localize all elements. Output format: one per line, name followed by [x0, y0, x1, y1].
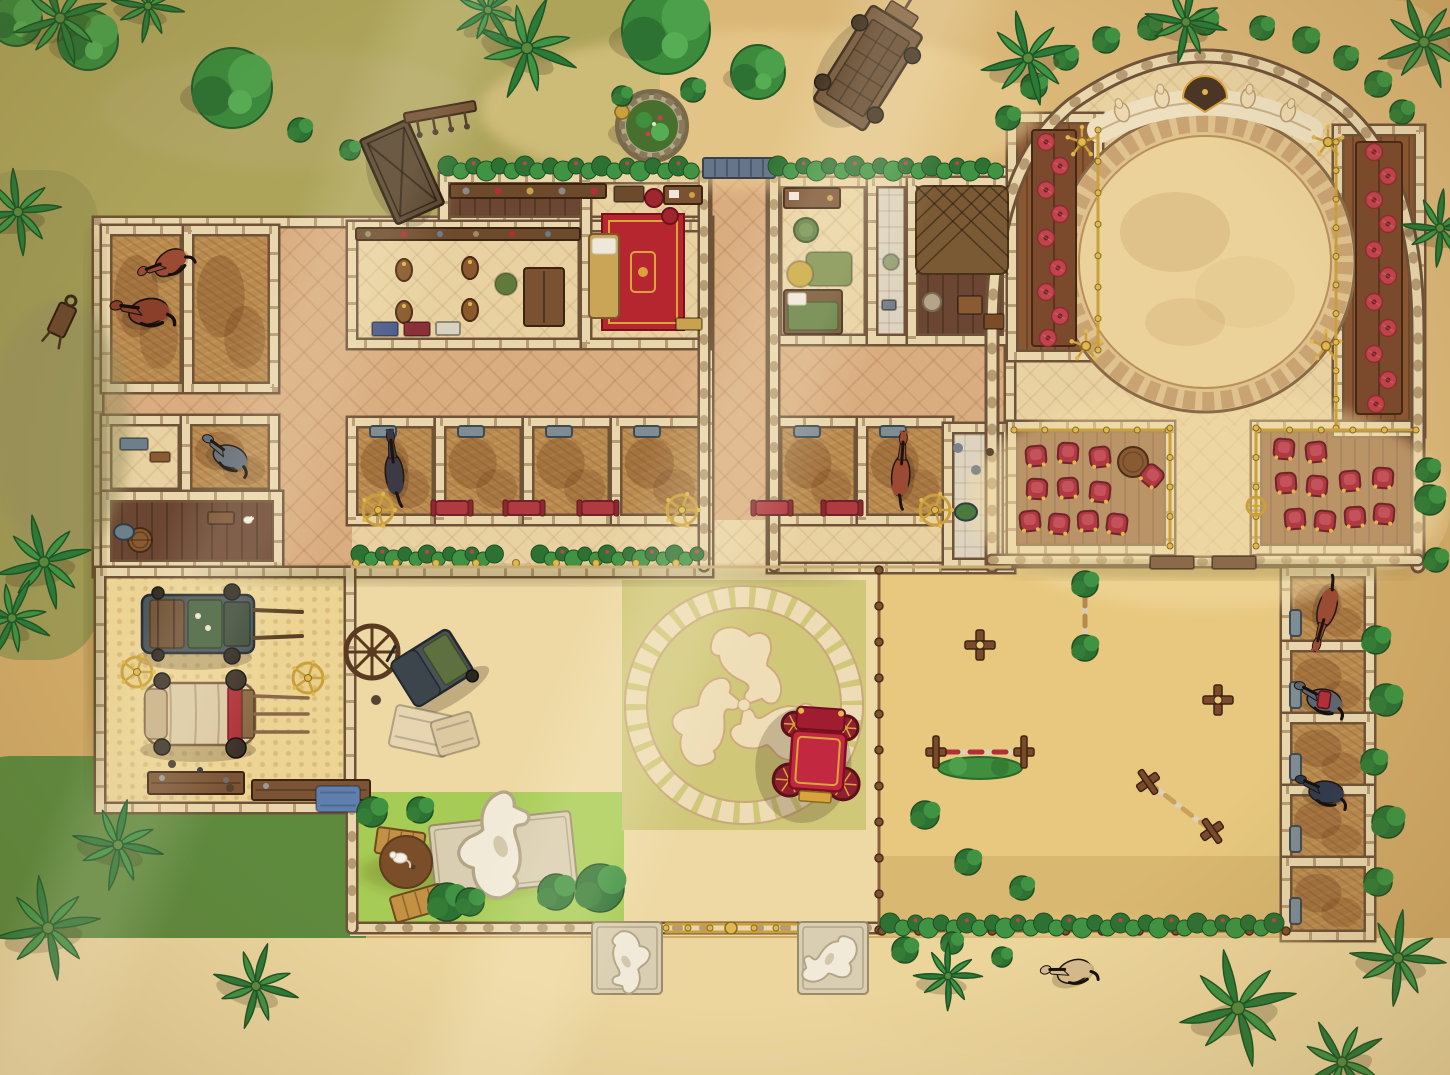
potted-flower	[1380, 372, 1397, 389]
battlemap-canvas	[0, 0, 1450, 1075]
arena-chair	[1339, 470, 1361, 493]
arena-chair	[1284, 508, 1306, 531]
gate-emblem	[1247, 497, 1265, 515]
potted-flower	[1380, 216, 1397, 233]
saddle-stand	[462, 256, 478, 280]
desk	[784, 188, 840, 208]
arena-chair	[1273, 438, 1295, 461]
arena-chair	[1089, 446, 1111, 469]
pouf	[645, 189, 663, 207]
red-bench	[503, 500, 545, 516]
arena-chair	[1106, 513, 1128, 536]
bush	[406, 797, 434, 823]
arena-ring	[1055, 112, 1355, 412]
feed-trough	[1290, 826, 1301, 852]
bush	[1009, 876, 1035, 900]
bush	[992, 947, 1014, 967]
red-bench	[821, 500, 863, 516]
hay-net	[916, 186, 1008, 274]
bush	[1360, 749, 1388, 775]
box	[404, 322, 430, 336]
feed-trough	[634, 426, 660, 437]
desk	[664, 186, 702, 204]
dirt-patch	[380, 836, 432, 888]
item	[986, 448, 994, 456]
bush	[1092, 27, 1120, 53]
bush	[1364, 71, 1392, 97]
bush	[1414, 485, 1446, 515]
box	[1150, 556, 1194, 569]
box	[372, 322, 398, 336]
potted-flower	[1380, 268, 1397, 285]
arena-chair	[1344, 506, 1365, 528]
bush	[287, 118, 313, 142]
arena-chair	[1275, 472, 1296, 494]
round-rug	[787, 261, 813, 287]
potted-flower	[1052, 158, 1069, 175]
bush	[1333, 46, 1359, 70]
potted-flower	[1366, 294, 1383, 311]
bush	[1423, 548, 1449, 572]
potted-flower	[1052, 206, 1069, 223]
jump-hedge	[926, 736, 1034, 779]
wall-shelf	[356, 228, 580, 240]
sack	[923, 293, 941, 311]
bush	[1415, 458, 1441, 482]
arena-chair	[1057, 442, 1078, 464]
palm-tree	[0, 868, 108, 987]
jump-post	[1194, 813, 1230, 850]
coach-cream	[140, 670, 308, 762]
potted-flower	[1038, 230, 1055, 247]
tub	[955, 503, 977, 520]
feed-trough	[458, 426, 484, 437]
palm-tree	[0, 165, 65, 258]
mounting-block	[1203, 685, 1233, 715]
item	[371, 695, 381, 705]
gold-wheel-ornament	[292, 660, 327, 696]
box	[208, 512, 234, 524]
item	[168, 760, 176, 768]
potted-flower	[1366, 346, 1383, 363]
bush	[575, 864, 627, 912]
bush	[1071, 635, 1099, 661]
potted-flower	[1052, 308, 1069, 325]
box	[614, 186, 644, 202]
potted-flower	[1366, 144, 1383, 161]
saddle-stand	[396, 300, 412, 324]
jump-vertical	[1071, 571, 1099, 661]
potted-flower	[1040, 330, 1057, 347]
arena-chair	[1057, 477, 1078, 499]
mounting-block	[965, 630, 995, 660]
feed-trough	[794, 426, 820, 437]
item	[197, 767, 203, 773]
potted-flower	[1050, 260, 1067, 277]
bush	[680, 78, 706, 102]
bush	[995, 106, 1021, 130]
wardrobe	[524, 268, 564, 326]
mosaic-horse	[669, 677, 745, 768]
box	[1212, 556, 1256, 569]
feed-trough	[1290, 898, 1301, 924]
bed-green	[784, 290, 842, 334]
hedge-row	[351, 545, 503, 568]
potted-flower	[1380, 168, 1397, 185]
red-bench	[751, 500, 793, 516]
saddle-stand	[396, 258, 412, 282]
objects-layer	[0, 0, 1445, 1051]
bush	[455, 888, 485, 916]
box	[984, 314, 1004, 329]
chicken	[244, 516, 255, 524]
bush	[537, 874, 576, 910]
saddle-stand	[462, 298, 478, 322]
bush	[1389, 100, 1415, 124]
bush	[910, 801, 940, 829]
pouf	[662, 208, 678, 224]
bush	[356, 797, 388, 827]
feed-trough	[1290, 610, 1301, 636]
bush	[1361, 626, 1391, 654]
armchair	[794, 218, 818, 242]
tarp	[316, 786, 360, 812]
potted-flower	[1038, 284, 1055, 301]
bush	[1249, 16, 1275, 40]
bush	[1371, 806, 1405, 838]
box	[150, 452, 170, 462]
round-rug	[883, 254, 899, 270]
potted-flower	[1366, 242, 1383, 259]
red-bench	[577, 500, 619, 516]
box	[882, 300, 896, 310]
jump-post	[1130, 764, 1166, 801]
barn-door	[703, 158, 775, 178]
tub	[114, 524, 134, 540]
potted-flower	[1380, 320, 1397, 337]
counter	[450, 184, 606, 198]
arena-chair	[1019, 510, 1041, 533]
potted-flower	[1368, 396, 1385, 413]
box	[676, 318, 702, 330]
item	[971, 465, 981, 475]
bush	[340, 140, 362, 160]
bush	[954, 849, 982, 875]
arena-chair	[1305, 441, 1327, 464]
red-bench	[431, 500, 473, 516]
arena-chair	[1025, 445, 1047, 468]
jump-diagonal	[1130, 764, 1230, 850]
arena-chair	[1372, 467, 1393, 489]
bush	[1292, 27, 1320, 53]
potted-flower	[1038, 182, 1055, 199]
item	[953, 443, 963, 453]
box	[120, 438, 148, 450]
arena-chair	[1306, 475, 1328, 498]
arena-chair	[1314, 510, 1336, 533]
arena-chair	[1026, 478, 1047, 500]
bush	[1363, 868, 1393, 896]
bush	[612, 86, 634, 106]
arena-chair	[1048, 513, 1070, 536]
bush	[1369, 684, 1403, 716]
arena-chair	[1077, 510, 1098, 532]
coach-dark	[136, 584, 302, 670]
arena-chair	[1373, 503, 1395, 526]
box	[436, 322, 460, 335]
item	[226, 784, 234, 792]
box	[958, 296, 982, 314]
potted-flower	[1038, 134, 1055, 151]
arena-chair	[1089, 481, 1111, 504]
palm-tree	[201, 931, 311, 1041]
bush	[940, 932, 964, 954]
scene-overlay	[0, 0, 1450, 1075]
potted-flower	[1366, 192, 1383, 209]
round-rug	[495, 273, 517, 295]
wood-fence	[875, 566, 883, 934]
feed-trough	[546, 426, 572, 437]
bush	[891, 937, 919, 963]
bed	[589, 234, 619, 318]
bush	[1071, 571, 1099, 597]
